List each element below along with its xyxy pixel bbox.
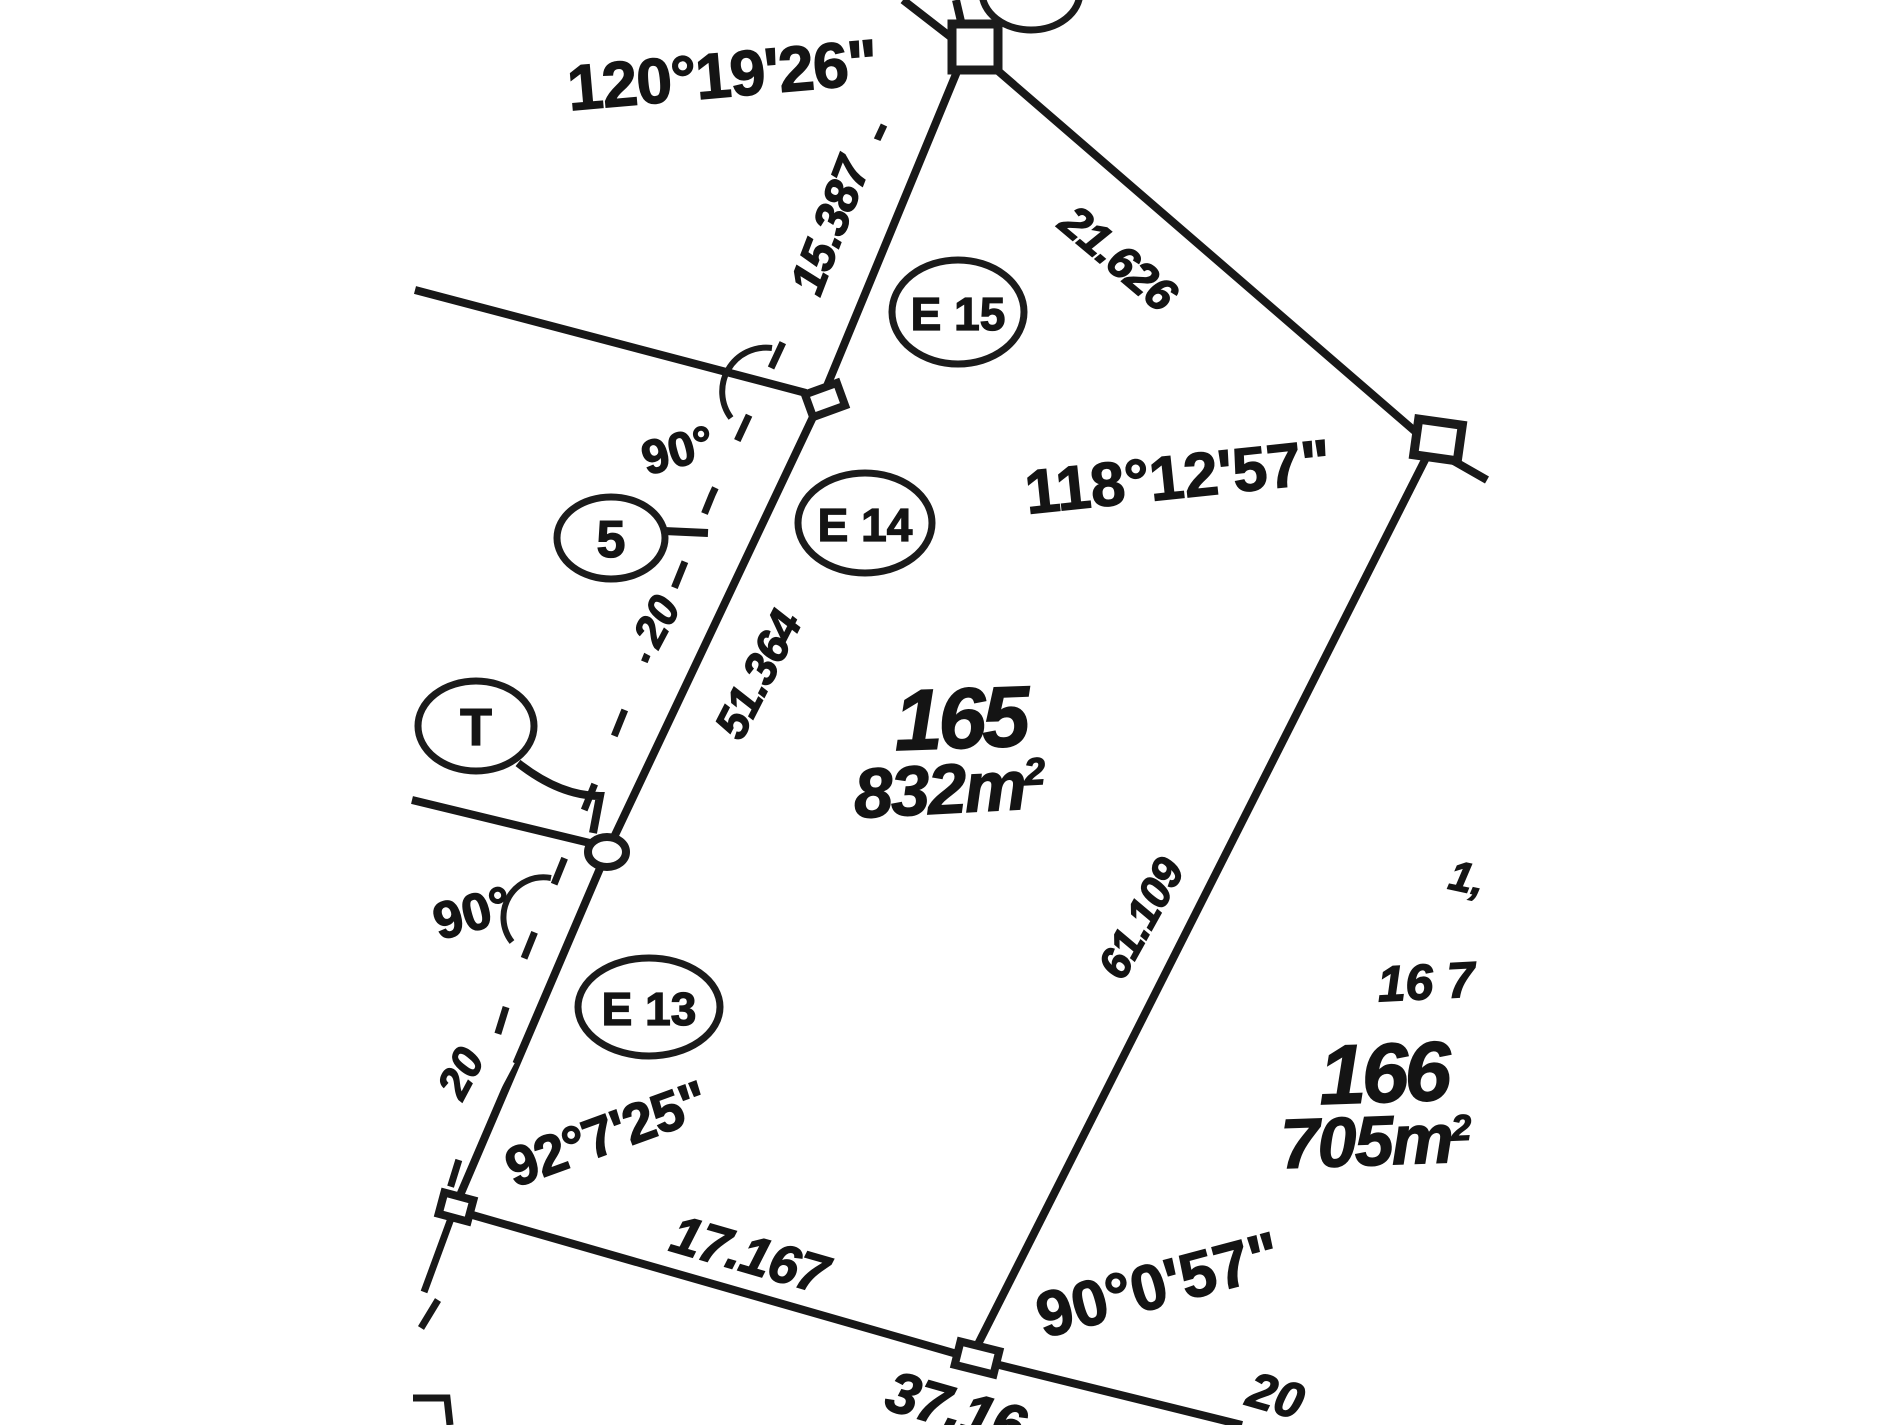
svg-text:832m2: 832m2 [852,745,1048,833]
svg-text:E 14: E 14 [818,499,913,551]
svg-text:E 15: E 15 [911,288,1006,340]
svg-text:5: 5 [597,511,626,569]
svg-text:16 7: 16 7 [1376,951,1478,1012]
svg-text:E 13: E 13 [602,983,697,1035]
svg-text:T: T [460,699,492,757]
svg-text:705m2: 705m2 [1279,1099,1473,1184]
